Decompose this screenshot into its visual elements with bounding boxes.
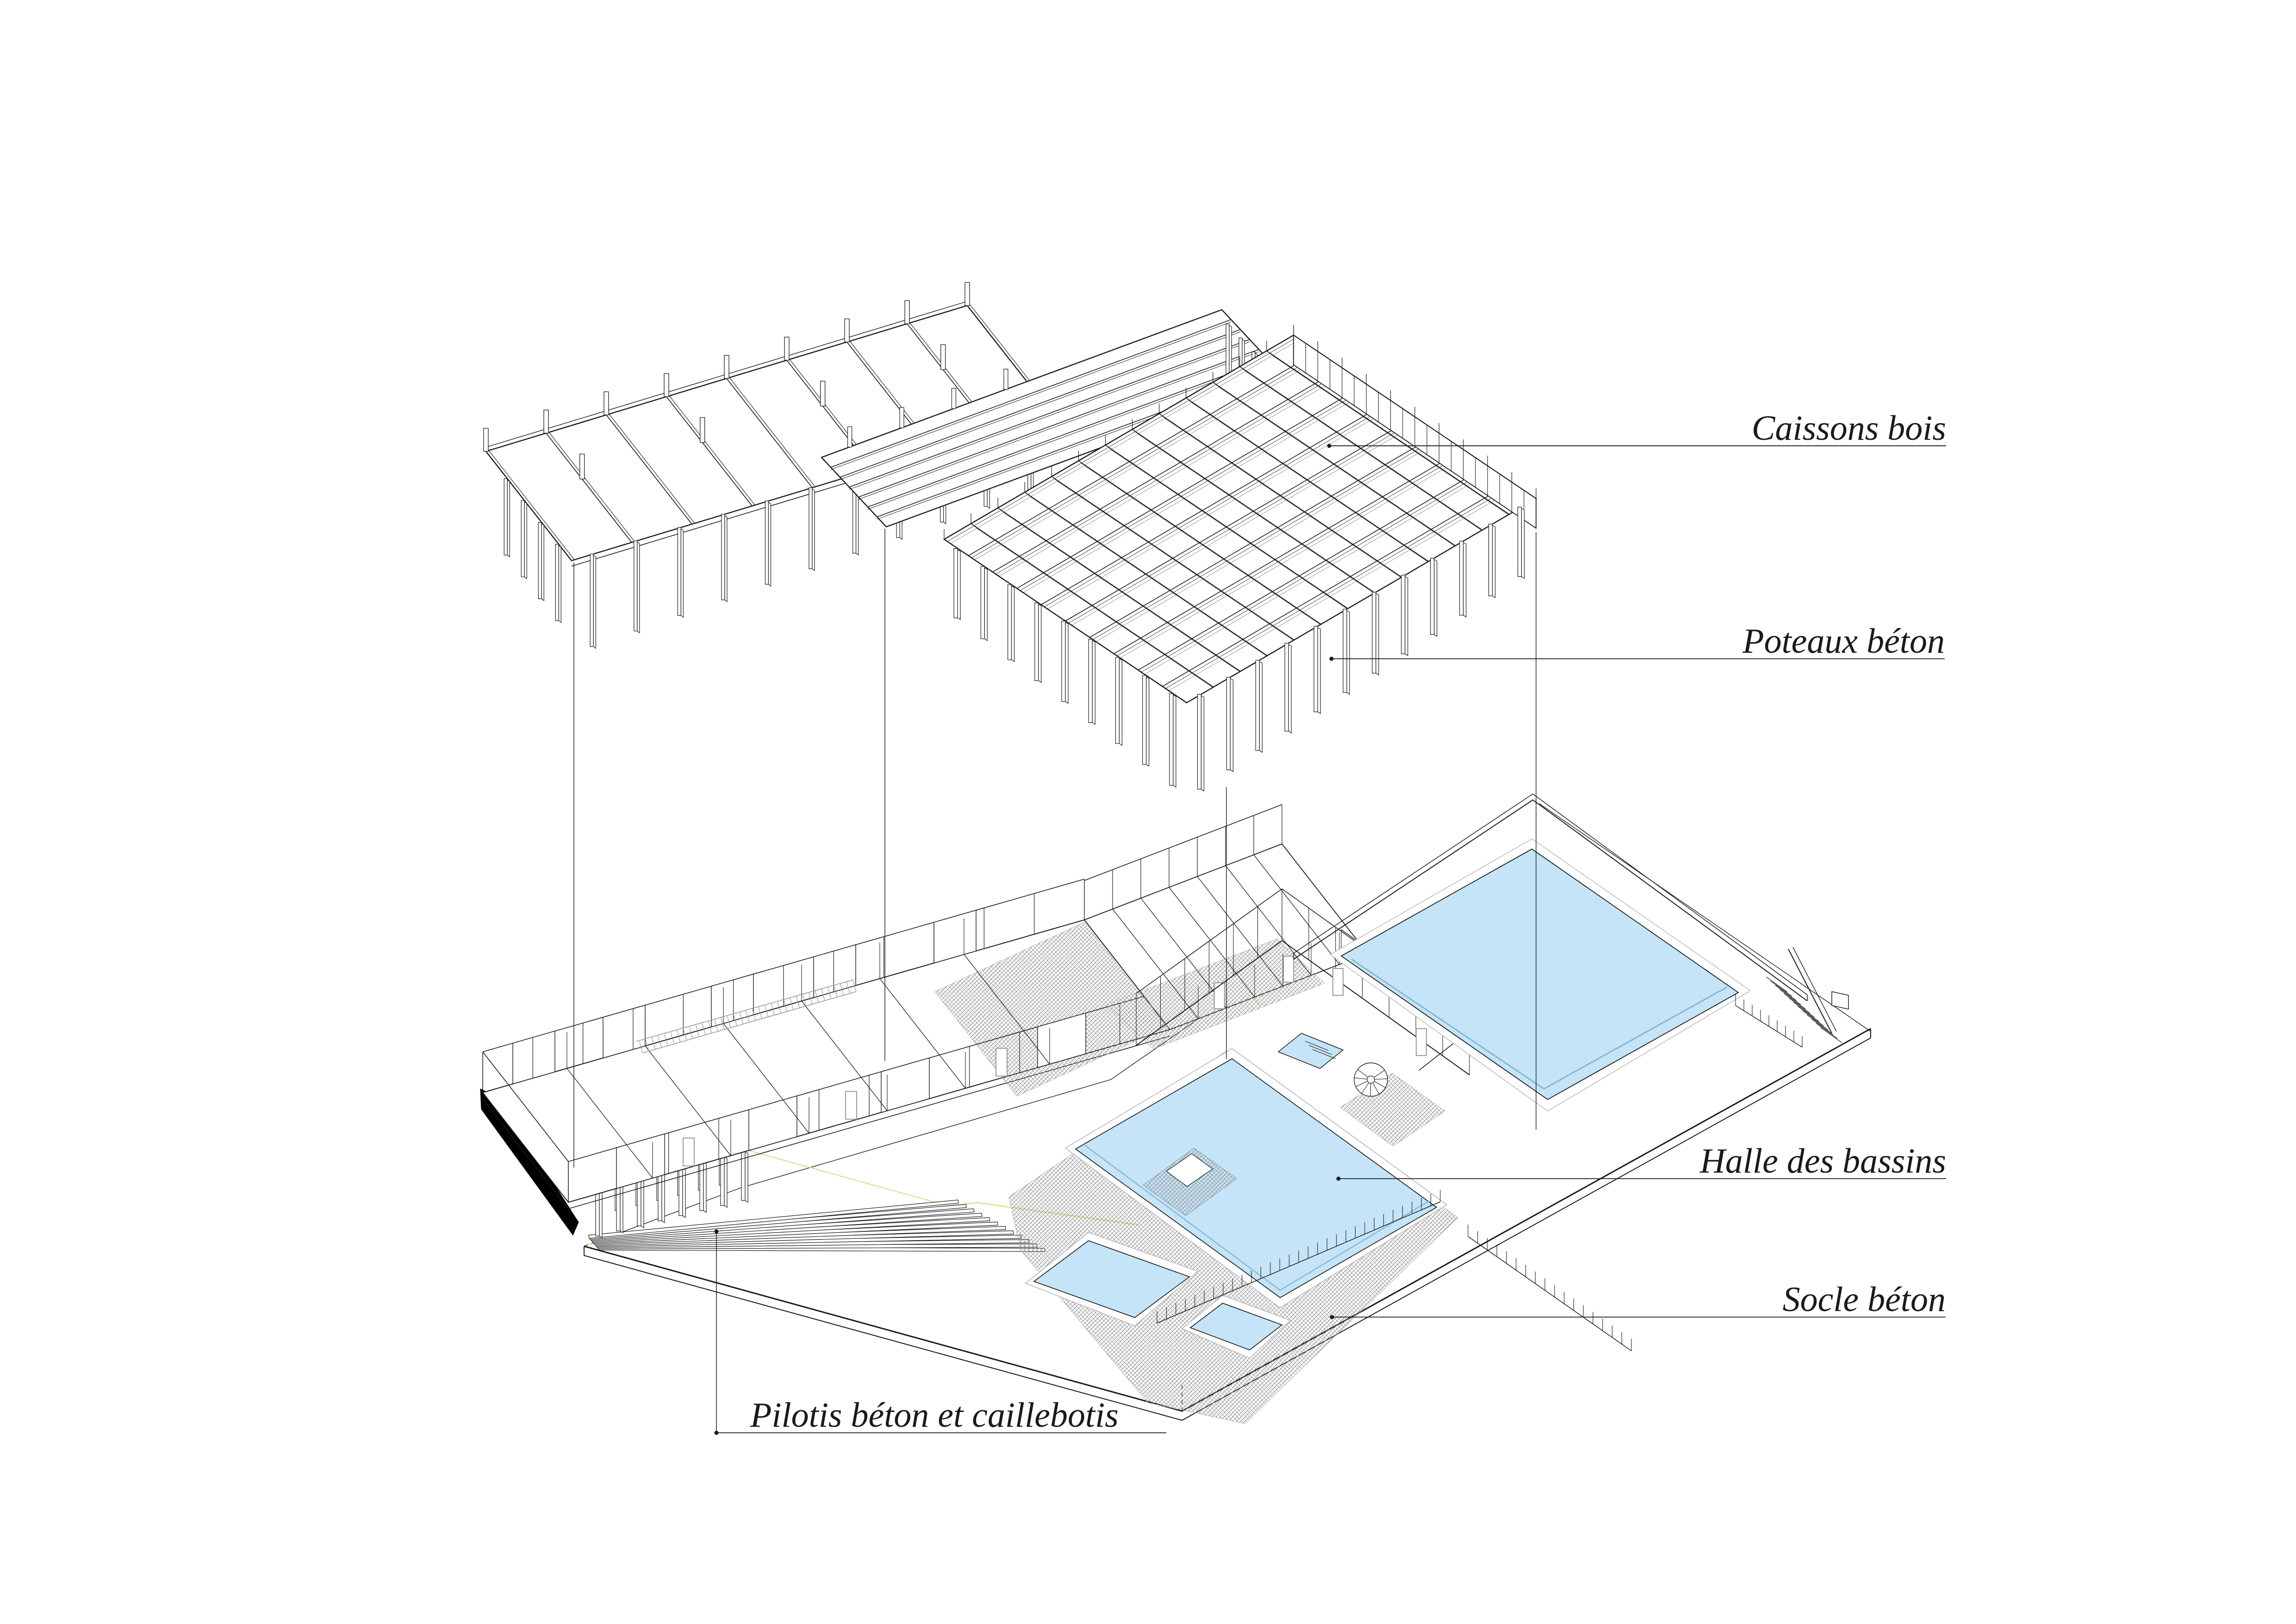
label-halle-des-bassins: Halle des bassins — [1699, 1142, 1946, 1181]
label-poteaux-beton: Poteaux béton — [1742, 622, 1945, 661]
label-caissons-bois: Caissons bois — [1752, 409, 1946, 448]
label-socle-beton: Socle béton — [1783, 1280, 1946, 1319]
label-pilotis-beton-et-caillebotis: Pilotis béton et caillebotis — [750, 1396, 1119, 1435]
drawing-page: Caissons bois Poteaux béton Halle des ba… — [0, 0, 2296, 1624]
grating-ramp-caillebotis — [589, 1200, 1045, 1252]
exploded-axonometric-drawing: Caissons bois Poteaux béton Halle des ba… — [0, 0, 2296, 1624]
outdoor-pool-deck — [1294, 794, 1848, 1111]
